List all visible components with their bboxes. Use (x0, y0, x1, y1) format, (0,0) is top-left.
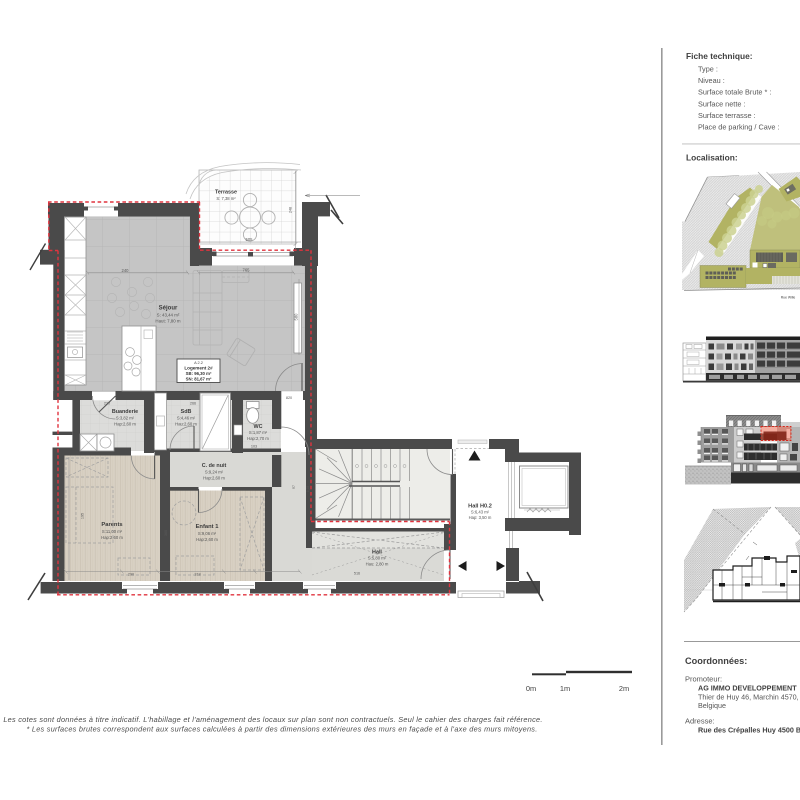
svg-text:S:11,00 m²: S:11,00 m² (102, 529, 123, 534)
svg-text:Surface terrasse :: Surface terrasse : (698, 111, 756, 120)
svg-text:Hap:2,60 m: Hap:2,60 m (101, 535, 123, 540)
svg-text:C. de nuit: C. de nuit (202, 463, 227, 469)
svg-text:Les cotes sont données à titre: Les cotes sont données à titre indicatif… (3, 715, 542, 724)
svg-text:Type :: Type : (698, 65, 718, 74)
svg-text:Coordonnées:: Coordonnées: (685, 656, 747, 666)
svg-text:S:6,43 m²: S:6,43 m² (471, 510, 490, 515)
svg-text:S:9,24 m²: S:9,24 m² (205, 470, 224, 475)
svg-text:1m: 1m (560, 684, 570, 693)
svg-text:Hap: 3,50 m: Hap: 3,50 m (469, 515, 492, 520)
svg-text:Thier de Huy 46, Marchin 4570,: Thier de Huy 46, Marchin 4570, (698, 692, 799, 701)
svg-text:A 2.2: A 2.2 (194, 360, 203, 365)
svg-text:Buanderie: Buanderie (112, 409, 138, 415)
svg-text:Parents: Parents (101, 522, 122, 528)
svg-text:318: 318 (194, 573, 200, 577)
svg-text:Rue Wille: Rue Wille (781, 296, 796, 300)
svg-text:Surface nette :: Surface nette : (698, 99, 745, 108)
svg-text:SdB: SdB (181, 409, 192, 415)
svg-text:240: 240 (122, 268, 130, 273)
svg-text:S:4,46 m²: S:4,46 m² (177, 416, 196, 421)
svg-text:SB: 96,30 m²: SB: 96,30 m² (186, 371, 212, 376)
svg-text:360: 360 (164, 530, 168, 536)
svg-text:765: 765 (243, 268, 251, 273)
svg-text:S: 7,38 m²: S: 7,38 m² (216, 196, 236, 201)
svg-text:Rue des Crépalles Huy 4500 Be: Rue des Crépalles Huy 4500 Be (698, 726, 800, 735)
svg-text:Place de parking / Cave :: Place de parking / Cave : (698, 123, 780, 132)
svg-text:Adresse:: Adresse: (685, 717, 715, 726)
svg-text:Logement 2#: Logement 2# (184, 366, 213, 371)
svg-text:2m: 2m (619, 684, 629, 693)
svg-text:AG IMMO DEVELOPPEMENT: AG IMMO DEVELOPPEMENT (698, 684, 797, 693)
svg-text:Niveau :: Niveau : (698, 76, 725, 85)
svg-text:580: 580 (294, 313, 299, 321)
svg-text:S:3,82 m²: S:3,82 m² (116, 416, 135, 421)
svg-text:Séjour: Séjour (159, 306, 178, 312)
svg-text:Hap:2,60 m: Hap:2,60 m (203, 476, 225, 481)
svg-text:Promoteur:: Promoteur: (685, 675, 722, 684)
svg-text:S:5,80 m²: S:5,80 m² (368, 556, 387, 561)
svg-text:Localisation:: Localisation: (686, 153, 738, 163)
svg-text:S:1,87 m²: S:1,87 m² (249, 430, 268, 435)
svg-text:195: 195 (81, 513, 85, 519)
svg-text:Enfant 1: Enfant 1 (196, 524, 220, 530)
svg-text:516: 516 (354, 572, 360, 576)
svg-text:SN: 81,67 m²: SN: 81,67 m² (186, 377, 212, 382)
svg-text:248: 248 (289, 207, 293, 213)
svg-text:Fiche technique:: Fiche technique: (686, 51, 753, 61)
svg-text:Hau: 2,80 m: Hau: 2,80 m (366, 562, 389, 567)
svg-text:Belgique: Belgique (698, 701, 726, 710)
svg-text:Hau:2,60 m: Hau:2,60 m (175, 422, 197, 427)
svg-text:505: 505 (246, 237, 254, 242)
svg-text:S: 43,44 m²: S: 43,44 m² (157, 313, 180, 318)
svg-text:Haut: 7,80 m: Haut: 7,80 m (155, 319, 180, 324)
svg-text:266: 266 (190, 402, 196, 406)
svg-text:103: 103 (251, 445, 257, 449)
svg-text:820: 820 (286, 396, 292, 400)
svg-text:* Les surfaces brutes correspo: * Les surfaces brutes correspondent aux … (26, 724, 537, 733)
svg-text:S:9,06 m²: S:9,06 m² (198, 531, 217, 536)
svg-text:220: 220 (104, 402, 110, 406)
svg-text:Hap:2,70 m: Hap:2,70 m (247, 436, 269, 441)
svg-text:9,18: 9,18 (306, 486, 310, 493)
svg-text:Hap:2,60 m: Hap:2,60 m (114, 422, 136, 427)
svg-text:97: 97 (292, 485, 296, 489)
svg-text:Terrasse: Terrasse (215, 190, 237, 196)
svg-text:Hap:2,60 m: Hap:2,60 m (196, 537, 218, 542)
svg-text:0m: 0m (526, 684, 536, 693)
svg-text:290: 290 (128, 573, 134, 577)
svg-text:Surface totale Brute * :: Surface totale Brute * : (698, 88, 771, 97)
